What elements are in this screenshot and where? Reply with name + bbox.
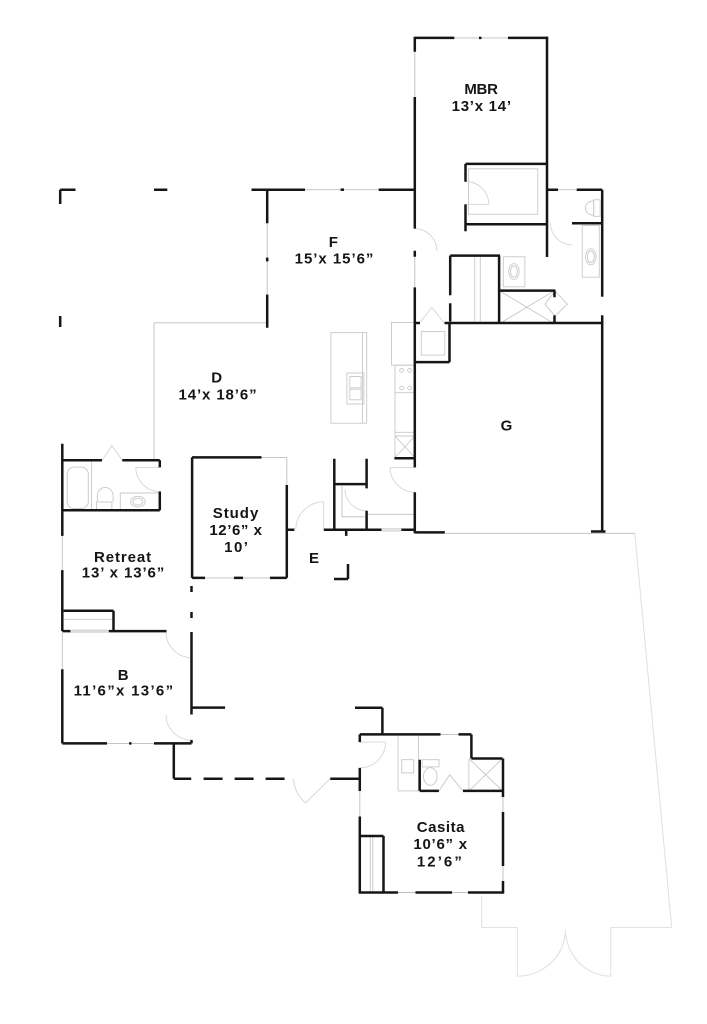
svg-text:13’x 14’: 13’x 14’	[452, 98, 512, 115]
svg-text:10’: 10’	[224, 539, 249, 556]
svg-text:12’6” x: 12’6” x	[209, 522, 262, 539]
svg-text:15’x 15’6”: 15’x 15’6”	[295, 251, 375, 268]
svg-text:G: G	[501, 418, 513, 435]
svg-text:14’x 18’6”: 14’x 18’6”	[179, 387, 258, 404]
svg-text:Retreat: Retreat	[94, 549, 152, 566]
svg-text:D: D	[211, 370, 222, 387]
svg-text:13’ x 13’6”: 13’ x 13’6”	[82, 565, 165, 582]
svg-text:MBR: MBR	[464, 81, 498, 98]
svg-text:Study: Study	[213, 505, 260, 522]
svg-text:10’6” x: 10’6” x	[413, 836, 467, 853]
svg-text:F: F	[329, 234, 338, 251]
svg-text:11’6”x 13’6”: 11’6”x 13’6”	[74, 682, 175, 699]
svg-text:Casita: Casita	[417, 819, 465, 836]
svg-text:12’6”: 12’6”	[417, 854, 464, 871]
svg-text:E: E	[309, 550, 319, 567]
